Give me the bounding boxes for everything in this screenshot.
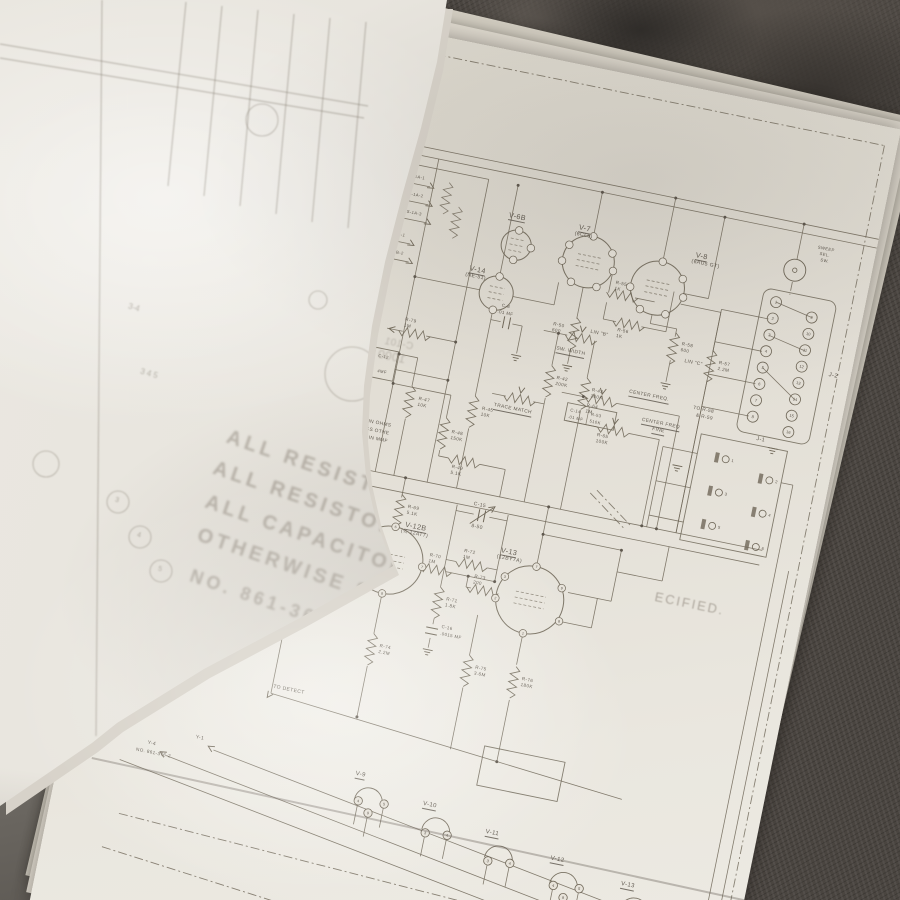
wire [554, 282, 559, 305]
capacitor-symbol [425, 627, 438, 635]
ground-bar [564, 368, 570, 369]
pin-socket [708, 522, 716, 530]
base-outline [620, 895, 650, 900]
ground-bar [513, 357, 519, 358]
wire [591, 598, 597, 627]
wire [456, 511, 474, 515]
junction-dot [355, 715, 359, 719]
wire [450, 687, 463, 749]
ground-bar [425, 654, 428, 655]
component-box [680, 434, 788, 557]
terminal-number: 3 [768, 332, 772, 337]
ground-bar [768, 447, 778, 449]
tube-grid [646, 286, 670, 291]
tube-pin [592, 283, 601, 292]
tube-base-V-12: 495 [542, 870, 585, 900]
wire [702, 309, 722, 406]
capacitor-symbol [502, 316, 510, 329]
wire [774, 302, 813, 317]
wire [491, 320, 501, 322]
wire [781, 483, 793, 485]
junction-dot [802, 222, 806, 226]
ground-symbol [422, 649, 433, 656]
ghost-line [348, 22, 366, 228]
ground-bar [562, 365, 572, 367]
wire [603, 319, 616, 322]
wire [641, 327, 665, 332]
wire [426, 336, 455, 342]
wire [517, 633, 523, 664]
ground-bar [565, 371, 568, 372]
wire [629, 433, 659, 439]
ghost-line [0, 44, 368, 106]
wire [663, 198, 676, 262]
tube-V-8 [622, 252, 694, 322]
junction-dot [723, 215, 727, 219]
tube-grid [510, 244, 523, 247]
wire [593, 192, 602, 236]
arrow [518, 387, 525, 394]
wire [715, 342, 762, 352]
cap-plate [502, 316, 504, 328]
pin-lead [548, 890, 552, 900]
ghost-line [168, 2, 186, 186]
ground-bar [662, 386, 668, 387]
wire [428, 638, 430, 648]
junction-dot [541, 533, 545, 537]
tube-pin [558, 256, 567, 265]
terminal-number: 15 [789, 413, 795, 419]
arrow [579, 326, 586, 333]
terminal-number: 2 [771, 316, 775, 321]
ghost-line [276, 14, 294, 214]
junction-dot [655, 527, 659, 531]
tube-pin [509, 255, 518, 264]
junction-dot [413, 275, 417, 279]
wire [393, 383, 451, 395]
terminal-number: 4 [764, 348, 768, 353]
connector-pin: 1 [714, 452, 736, 466]
cap-plate [477, 509, 479, 521]
pin-body [758, 473, 764, 484]
wire [264, 693, 628, 799]
wire [492, 393, 506, 396]
wire [489, 517, 507, 521]
ground-bar [663, 389, 666, 390]
pin-body [751, 507, 757, 518]
terminal-number: 10 [806, 331, 812, 337]
wire [512, 324, 522, 326]
pin-socket [715, 488, 723, 496]
ground-bar [514, 360, 517, 361]
wire [587, 341, 595, 378]
resistor-R-58 [665, 332, 680, 365]
tube-grid [578, 254, 601, 259]
connector-pin: 3 [707, 485, 729, 499]
wire [517, 326, 523, 353]
pin-body [714, 452, 720, 463]
connector-pin: 6 [744, 540, 766, 554]
wire [768, 335, 807, 350]
resistor-R-76 [505, 666, 520, 699]
wire [797, 224, 804, 259]
wire [642, 440, 660, 526]
tube-grid [514, 603, 544, 609]
wire [650, 323, 676, 328]
junction-dot [391, 382, 395, 386]
tube-pin [488, 305, 497, 314]
terminal-number: 13 [796, 380, 802, 386]
pin-lead [442, 840, 446, 859]
ground-bar [673, 465, 683, 467]
tube-pin [526, 244, 535, 253]
wire [480, 464, 505, 469]
terminal-number: 8 [751, 414, 755, 419]
wire [662, 547, 669, 581]
wire [500, 469, 506, 496]
dashed-border [585, 493, 630, 528]
pin-lead [574, 893, 578, 900]
ghost-line [0, 58, 364, 118]
junction-dot [493, 580, 497, 584]
wire [487, 568, 497, 570]
indicator-lamp [782, 257, 808, 283]
cap-plate [508, 318, 510, 330]
ground-symbol [660, 383, 671, 390]
ground-bar [674, 468, 680, 469]
tube-grid [489, 292, 504, 295]
terminal-number: 1 [774, 299, 778, 304]
wire [681, 304, 721, 312]
cap-plate [483, 510, 485, 522]
pin-lead [420, 837, 424, 856]
ground-bar [770, 453, 773, 454]
resistor-R-42 [541, 365, 556, 398]
tube-grid [576, 265, 599, 270]
resistor-pot [503, 391, 536, 406]
resistor-R-71 [430, 586, 445, 619]
junction-dot [582, 395, 586, 399]
junction-dot [466, 574, 470, 578]
wire [101, 759, 669, 900]
pin-socket [765, 476, 773, 484]
pin-number: 6 [761, 546, 765, 551]
tube-pin [608, 267, 617, 276]
wire [666, 360, 670, 382]
ground-bar [511, 354, 521, 356]
tube-grid [515, 597, 545, 603]
pin-lead [505, 868, 509, 887]
terminal-number: 9 [810, 315, 814, 320]
pin-lead [483, 865, 487, 884]
terminal-number: 11 [803, 347, 809, 353]
resistor-R-47 [401, 385, 416, 418]
junction-dot [404, 476, 408, 480]
wire [147, 756, 710, 900]
tube-grid [488, 298, 503, 301]
tube-grid [647, 280, 671, 285]
tube-grid [490, 286, 505, 289]
cap-plate [425, 633, 437, 635]
tube-pin [678, 275, 687, 284]
wire [611, 550, 621, 601]
wire [439, 456, 449, 458]
wire [446, 560, 456, 562]
wire [395, 369, 448, 380]
wire [650, 315, 652, 324]
wire [374, 593, 382, 633]
tube-pin [515, 226, 524, 235]
wire [475, 310, 493, 396]
wire [721, 309, 768, 319]
wire [675, 329, 677, 337]
tube-grid [508, 250, 521, 253]
wire [708, 217, 725, 298]
ground-bar [423, 649, 433, 651]
wire [543, 534, 621, 550]
ground-bar [424, 652, 430, 653]
junction-dot [446, 378, 450, 382]
ground-bar [769, 450, 775, 451]
wire [466, 576, 468, 587]
tube-pin [658, 257, 667, 266]
wire [394, 419, 406, 476]
ghost-line [96, 0, 102, 736]
wire [412, 358, 418, 386]
resistor-value: 1K [614, 286, 621, 292]
wire [560, 410, 580, 509]
connector-pin: 2 [758, 473, 780, 487]
resistor-R-74 [363, 633, 378, 666]
dashed-border [96, 847, 376, 900]
wire [439, 450, 440, 456]
resistor-R-72 [455, 557, 488, 572]
terminal-number: 12 [799, 364, 805, 370]
wire [357, 666, 367, 717]
terminal-number: 7 [754, 398, 758, 403]
tube-base-V-13: 45 [614, 895, 652, 900]
wire [497, 700, 510, 762]
pin-number: 2 [775, 479, 779, 484]
tube-base-V-9: 495 [347, 785, 390, 840]
junction-dot [640, 524, 644, 528]
resistor-R-69 [391, 494, 406, 527]
tube-grid [577, 260, 600, 265]
small-resistor [439, 182, 454, 215]
tube-pin [495, 272, 504, 281]
wire [708, 374, 755, 384]
tube-grid [511, 238, 524, 241]
junction-dot [620, 549, 624, 553]
wire [513, 297, 554, 305]
wire [446, 395, 451, 418]
junction-dot [674, 196, 678, 200]
resistor-R-48 [436, 417, 451, 450]
terminal-number: 6 [758, 381, 762, 386]
ghost-circle [309, 291, 327, 309]
ground-bar [661, 383, 671, 385]
wire [617, 403, 680, 416]
junction-dot [495, 760, 499, 764]
junction-dot [454, 340, 458, 344]
component-box [477, 746, 565, 802]
terminal-number: 14 [792, 396, 798, 402]
pin-number: 3 [724, 491, 728, 496]
junction-dot [547, 505, 551, 509]
pin-number: 5 [718, 525, 722, 530]
resistor-value: 1K [616, 334, 623, 340]
arrow [207, 744, 215, 752]
ground-bar [675, 471, 678, 472]
arrow [265, 691, 273, 699]
cap-plate [426, 627, 438, 629]
tube-grid [516, 591, 546, 597]
wire [577, 287, 583, 318]
wire [603, 302, 606, 319]
wire [433, 618, 434, 624]
indicator-lamp [792, 268, 797, 273]
resistor-R-75 [459, 654, 474, 687]
pin-socket [758, 510, 766, 518]
tube-V-13: 732981 [485, 555, 573, 644]
ghost-line [204, 6, 222, 196]
junction-dot [601, 191, 605, 195]
junction-dot [516, 184, 520, 188]
pin-body [707, 485, 713, 496]
tube-pin [608, 249, 617, 258]
ground-symbol [561, 365, 572, 372]
connector-pin: 5 [700, 519, 722, 533]
pin-lead [379, 808, 383, 827]
wire [647, 446, 663, 526]
terminal-number: 16 [786, 429, 792, 435]
wire [562, 622, 591, 628]
wire [617, 572, 662, 581]
ground-symbol [767, 447, 778, 454]
tube-V-6B [498, 224, 539, 268]
wire [543, 507, 549, 534]
pin-body [744, 540, 750, 551]
wire [470, 615, 478, 655]
ghost-circle [246, 104, 278, 136]
pin-body [700, 519, 706, 530]
resistor-R-45 [464, 395, 479, 428]
pin-number: 1 [731, 458, 735, 463]
small-resistor [448, 206, 463, 239]
photo-scene: 6782732981123456789101112131415161234564… [0, 0, 900, 900]
dashed-border [113, 813, 737, 900]
wire [568, 592, 611, 601]
pin-number: 4 [768, 512, 772, 517]
ghost-line [240, 10, 258, 206]
ghost-line [312, 18, 330, 222]
ground-symbol [510, 354, 521, 361]
wire [446, 572, 495, 582]
ghost-circle [33, 451, 59, 477]
connector-pin: 4 [751, 507, 773, 521]
ground-symbol [671, 465, 682, 472]
wire [195, 750, 748, 900]
resistor-R-50 [566, 317, 581, 350]
pin-socket [722, 455, 730, 463]
tube-grid [644, 292, 668, 297]
wire [536, 534, 543, 566]
